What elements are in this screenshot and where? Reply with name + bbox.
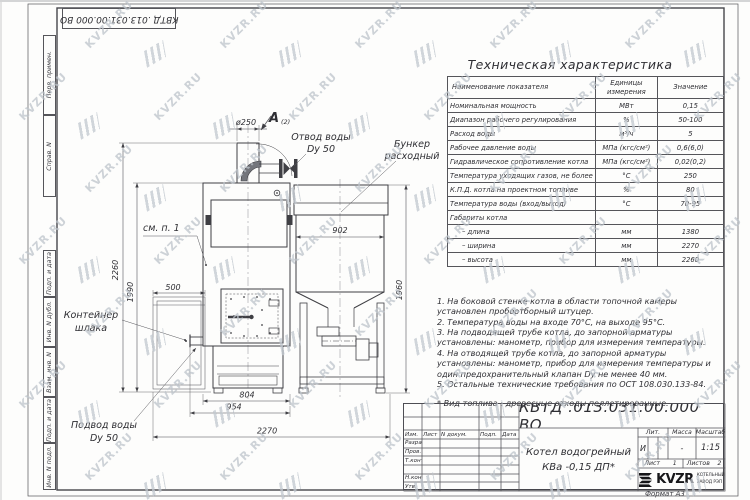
titleblock-cell	[501, 448, 519, 457]
sheets-value: 2	[717, 460, 721, 467]
mass-header-cell: Масса	[668, 428, 696, 437]
titleblock-header-cell: Лист	[422, 430, 440, 439]
titleblock-cell	[479, 482, 501, 491]
titleblock-cell	[440, 474, 479, 483]
titleblock-cell	[440, 482, 479, 491]
label-slag-container: Контейнер	[64, 310, 118, 321]
dim-bunker-width: 902	[332, 226, 347, 235]
dimensions	[119, 125, 410, 441]
sheet-label: Лист	[644, 460, 660, 467]
spec-value: 80	[657, 183, 723, 197]
table-row: Номинальная мощностьМВт0,15	[448, 99, 724, 113]
titleblock-cell	[501, 456, 519, 465]
titleblock-cell	[422, 474, 440, 483]
spec-col-name: Наименование показателя	[448, 77, 596, 99]
spec-value: 0,15	[657, 99, 723, 113]
lit-value-cell: И	[638, 437, 648, 459]
spec-value: 0,02(0,2)	[657, 155, 723, 169]
spec-units: °С	[595, 197, 657, 211]
table-row: – высотамм2260	[448, 253, 724, 267]
note-item: 4. На отводящей трубе котла, до запорной…	[437, 348, 727, 379]
frame-label-text: Инв. N подл.	[46, 446, 53, 488]
titleblock-cell	[479, 439, 501, 448]
titleblock-cell	[479, 465, 501, 474]
sheets-total-cell: Листов 2	[683, 459, 725, 468]
titleblock-cell	[479, 474, 501, 483]
titleblock-cell	[440, 465, 479, 474]
notes-block: 1. На боковой стенке котла в области топ…	[437, 296, 727, 409]
spec-table: Наименование показателя Единицы измерени…	[447, 76, 724, 267]
label-water-outlet-dn: Dy 50	[307, 144, 335, 155]
titleblock-header-cell: Подп.	[479, 430, 501, 439]
doc-name-line1: Котел водогрейный	[526, 445, 631, 460]
mass-value-cell: -	[668, 437, 696, 459]
label-water-inlet: Подвод воды	[71, 420, 138, 431]
spec-units: МПа (кгс/см²)	[595, 155, 657, 169]
table-row: Температура уходящих газов, не более°С25…	[448, 169, 724, 183]
spec-name: Температура воды (вход/выход)	[448, 197, 596, 211]
doc-name-line2: КВа -0,15 ДП*	[542, 460, 615, 475]
sheet-number-cell: Лист 1	[638, 459, 683, 468]
titleblock-cell	[404, 465, 422, 474]
label-bunker-2: расходный	[384, 151, 440, 162]
spec-units: %	[595, 183, 657, 197]
spec-col-value: Значение	[657, 77, 723, 99]
lit-value-cell-3	[658, 437, 668, 459]
scale-value-cell: 1:15	[696, 437, 725, 459]
dim-chimney-diameter: ø250	[235, 118, 256, 127]
company-logo-cell: KVZR КОТЕЛЬНЫЙ ЗАВОД РЭП	[638, 468, 725, 491]
spec-units: МПа (кгс/см²)	[595, 141, 657, 155]
titleblock-cell	[440, 417, 479, 430]
titleblock-cell: Н.контр.	[404, 474, 422, 483]
titleblock-header-cell: Изм.	[404, 430, 422, 439]
spec-name: Номинальная мощность	[448, 99, 596, 113]
titleblock-cell	[422, 456, 440, 465]
brand-name: KVZR	[656, 472, 694, 487]
spec-units: мм	[595, 225, 657, 239]
dim-total-height: 2260	[111, 260, 120, 280]
spec-value: 2260	[657, 253, 723, 267]
spec-name: – длина	[448, 225, 596, 239]
titleblock-cell	[440, 456, 479, 465]
frame-label-podp-data-2: Подп. и дата	[43, 397, 56, 443]
table-row: – длинамм1380	[448, 225, 724, 239]
top-designation-text: КВТД .013.031.00.000 ВО	[60, 14, 179, 24]
label-water-outlet: Отвод воды	[291, 132, 351, 143]
slag-container-group	[153, 297, 205, 389]
titleblock-cell: Утв.	[404, 482, 422, 491]
spec-units: мм	[595, 253, 657, 267]
note-item: 2. Температура воды на входе 70°С, на вы…	[437, 317, 727, 327]
note-item: 1. На боковой стенке котла в области топ…	[437, 296, 727, 317]
spec-name: – высота	[448, 253, 596, 267]
titleblock-cell	[501, 474, 519, 483]
table-row: Гидравлическое сопротивление котлаМПа (к…	[448, 155, 724, 169]
spec-units	[595, 211, 657, 225]
titleblock-cell: Разраб.	[404, 439, 422, 448]
titleblock-cell	[440, 404, 479, 417]
frame-label-perv-primen: Перв. примен.	[43, 35, 56, 115]
frame-label-text: Перв. примен.	[46, 51, 53, 98]
spec-name: К.П.Д. котла на проектном топливе	[448, 183, 596, 197]
lit-value-cell-2	[648, 437, 658, 459]
frame-label-vzam-inv: Взам. инв. N	[43, 347, 56, 397]
table-row: К.П.Д. котла на проектном топливе%80	[448, 183, 724, 197]
furnace-door-group	[221, 289, 283, 343]
table-row: Диапазон рабочего регулирования%50-100	[448, 113, 724, 127]
title-block: Изм.ЛистN докум.Подп.ДатаРазраб.Пров.Т.к…	[403, 403, 724, 490]
dim-container-width: 500	[165, 283, 180, 292]
titleblock-cell	[479, 448, 501, 457]
titleblock-cell	[479, 404, 501, 417]
dim-mid-width: 954	[226, 403, 241, 412]
table-row: Рабочее давление водыМПа (кгс/см²)0,6(6,…	[448, 141, 724, 155]
spec-value: 5	[657, 127, 723, 141]
table-row: Габариты котла	[448, 211, 724, 225]
doc-name-cell: Котел водогрейный КВа -0,15 ДП*	[519, 428, 638, 491]
scale-header-cell: Масштаб	[696, 428, 725, 437]
titleblock-cell	[479, 456, 501, 465]
frame-label-text: Взам. инв. N	[46, 352, 53, 393]
frame-label-sprav-n: Справ. N	[43, 115, 56, 197]
titleblock-cell	[422, 417, 440, 430]
spec-name: Габариты котла	[448, 211, 596, 225]
titleblock-header-cell: Дата	[501, 430, 519, 439]
kvzr-logo-icon	[638, 473, 653, 487]
brand-subtitle-line2: ЗАВОД РЭП	[697, 480, 725, 486]
designation-cell: КВТД .013.031.00.000 ВО	[519, 404, 725, 428]
titleblock-cell	[422, 482, 440, 491]
titleblock-cell	[501, 439, 519, 448]
spec-value	[657, 211, 723, 225]
view-marker-sheet: (2)	[281, 118, 290, 126]
spec-value: 250	[657, 169, 723, 183]
spec-value: 70-95	[657, 197, 723, 211]
titleblock-cell	[404, 417, 422, 430]
table-row: – ширинамм2270	[448, 239, 724, 253]
fuel-bunker-group	[294, 185, 388, 393]
note-item: 5. Остальные технические требования по О…	[437, 379, 727, 389]
titleblock-cell	[440, 448, 479, 457]
format-note: Формат А3	[645, 490, 685, 498]
titleblock-cell	[501, 404, 519, 417]
spec-col-units: Единицы измерения	[595, 77, 657, 99]
titleblock-cell	[422, 465, 440, 474]
table-row: Температура воды (вход/выход)°С70-95	[448, 197, 724, 211]
titleblock-cell	[501, 417, 519, 430]
titleblock-header-cell: N докум.	[440, 430, 479, 439]
top-designation-box: КВТД .013.031.00.000 ВО	[62, 8, 176, 29]
sheet-value: 1	[673, 460, 677, 467]
spec-units: м³/ч	[595, 127, 657, 141]
dim-body-height: 1990	[126, 282, 135, 302]
spec-value: 2270	[657, 239, 723, 253]
frame-label-text: Инв. N дубл.	[46, 301, 53, 342]
spec-value: 0,6(6,0)	[657, 141, 723, 155]
label-bunker: Бункер	[394, 139, 430, 150]
spec-units: мм	[595, 239, 657, 253]
title-block-left-grid: Изм.ЛистN докум.Подп.ДатаРазраб.Пров.Т.к…	[404, 404, 519, 491]
table-row: Расход водым³/ч5	[448, 127, 724, 141]
brand-subtitle: КОТЕЛЬНЫЙ ЗАВОД РЭП	[697, 473, 725, 486]
screw-feeder-group	[317, 327, 378, 360]
label-slag-container-2: шлака	[75, 323, 107, 334]
frame-label-inv-dubl: Инв. N дубл.	[43, 297, 56, 347]
titleblock-cell	[479, 417, 501, 430]
sheets-label: Листов	[687, 460, 710, 467]
frame-label-text: Справ. N	[46, 142, 53, 171]
titleblock-cell	[422, 448, 440, 457]
titleblock-cell	[501, 482, 519, 491]
titleblock-cell	[404, 404, 422, 417]
dim-base-width: 804	[239, 391, 254, 400]
titleblock-cell	[440, 439, 479, 448]
spec-units: °С	[595, 169, 657, 183]
spec-name: Расход воды	[448, 127, 596, 141]
titleblock-cell	[501, 465, 519, 474]
frame-label-podp-data-1: Подп. и дата	[43, 250, 56, 297]
spec-value: 1380	[657, 225, 723, 239]
frame-label-inv-podl: Инв. N подл.	[43, 443, 56, 490]
spec-units: %	[595, 113, 657, 127]
dim-overall-width: 2270	[257, 427, 277, 436]
spec-table-title: Техническая характеристика	[447, 57, 693, 72]
view-marker-a: A	[268, 111, 279, 126]
spec-name: – ширина	[448, 239, 596, 253]
frame-label-text: Подп. и дата	[46, 399, 53, 442]
spec-value: 50-100	[657, 113, 723, 127]
label-see-note: см. п. 1	[143, 223, 180, 234]
spec-header-row: Наименование показателя Единицы измерени…	[448, 77, 724, 99]
spec-units: МВт	[595, 99, 657, 113]
titleblock-cell: Т.контр.	[404, 456, 422, 465]
titleblock-cell	[422, 404, 440, 417]
lit-header-cell: Лит.	[638, 428, 668, 437]
spec-name: Диапазон рабочего регулирования	[448, 113, 596, 127]
spec-name: Гидравлическое сопротивление котла	[448, 155, 596, 169]
label-water-inlet-dn: Dy 50	[90, 433, 118, 444]
drawing-sheet: 2260 1990 ø250 500 902 1960 804 954 2270…	[0, 0, 750, 500]
spec-name: Рабочее давление воды	[448, 141, 596, 155]
spec-name: Температура уходящих газов, не более	[448, 169, 596, 183]
frame-label-text: Подп. и дата	[46, 252, 53, 295]
titleblock-cell: Пров.	[404, 448, 422, 457]
note-item: 3. На подводящей трубе котла, до запорно…	[437, 327, 727, 348]
dim-bunker-height: 1960	[395, 280, 404, 300]
titleblock-cell	[422, 439, 440, 448]
